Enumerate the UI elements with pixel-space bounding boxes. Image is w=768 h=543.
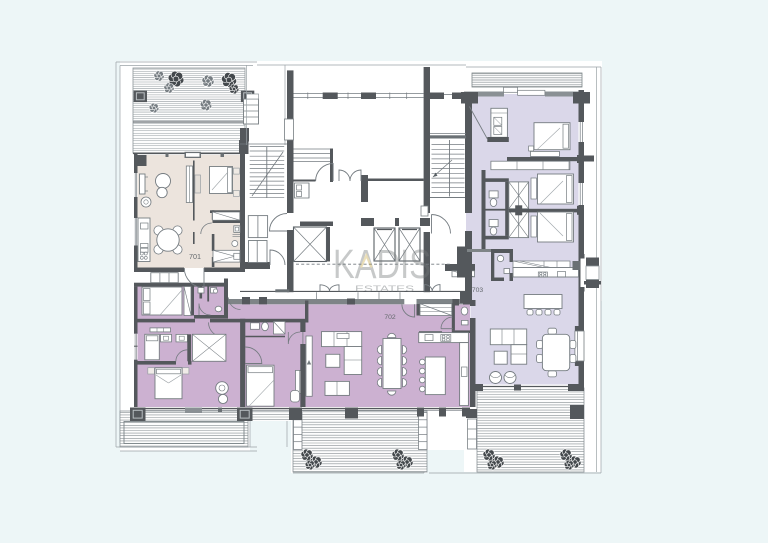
svg-text:ESTATES: ESTATES [355,285,414,294]
svg-text:701: 701 [189,252,201,261]
svg-text:703: 703 [472,287,484,294]
svg-text:702: 702 [384,314,396,321]
svg-text:KADIS: KADIS [333,241,431,287]
